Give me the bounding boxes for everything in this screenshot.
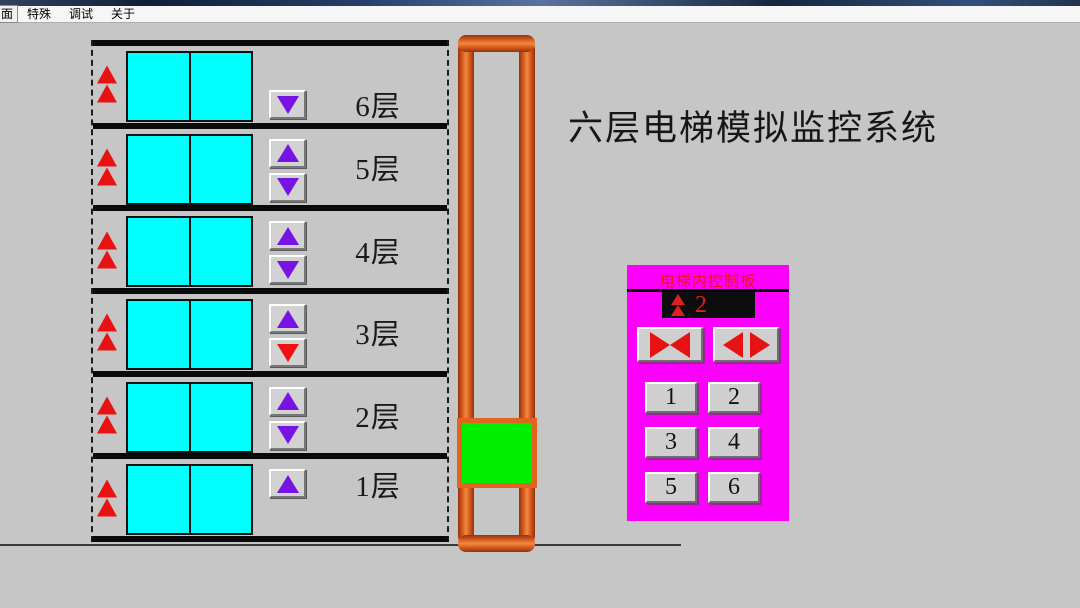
down-arrow-icon — [277, 178, 299, 196]
floor-row-5: 5层 — [93, 123, 447, 206]
elevator-door — [126, 134, 253, 205]
floor-button-6[interactable]: 6 — [708, 472, 760, 503]
up-arrow-icon — [277, 310, 299, 328]
floor-label-3: 3层 — [318, 311, 438, 353]
door-close-icon — [650, 332, 690, 358]
elevator-door — [126, 382, 253, 453]
floor-label-1: 1层 — [318, 463, 438, 505]
floor-label-4: 4层 — [318, 229, 438, 271]
elevator-door — [126, 464, 253, 535]
call-button-up-floor-3[interactable] — [269, 304, 306, 333]
call-button-down-floor-5[interactable] — [269, 173, 306, 202]
call-button-up-floor-4[interactable] — [269, 221, 306, 250]
building-floors: 6层 5层 4层 3层 2层 — [91, 40, 449, 542]
shaft-top-bar — [458, 35, 535, 52]
up-indicator-icon — [97, 65, 117, 104]
floor-button-2[interactable]: 2 — [708, 382, 760, 413]
call-button-down-floor-3[interactable] — [269, 338, 306, 367]
elevator-car — [457, 418, 537, 488]
call-button-down-floor-2[interactable] — [269, 421, 306, 450]
floor-button-grid: 123456 — [645, 382, 760, 503]
page-title: 六层电梯模拟监控系统 — [568, 100, 938, 151]
floor-button-3[interactable]: 3 — [645, 427, 697, 458]
ground-line — [0, 544, 681, 546]
elevator-door — [126, 216, 253, 287]
menu-item-2[interactable]: 特殊 — [18, 6, 60, 22]
down-arrow-icon — [277, 344, 299, 362]
floor-row-2: 2层 — [93, 371, 447, 454]
call-button-up-floor-1[interactable] — [269, 469, 306, 498]
door-divider — [189, 301, 191, 368]
floor-row-1: 1层 — [93, 453, 447, 536]
open-door-button[interactable] — [713, 327, 779, 362]
current-floor-value: 2 — [695, 292, 707, 318]
floor-button-1[interactable]: 1 — [645, 382, 697, 413]
menu-item-4[interactable]: 关于 — [102, 6, 144, 22]
up-indicator-icon — [97, 230, 117, 269]
up-arrow-icon — [277, 392, 299, 410]
up-indicator-icon — [97, 396, 117, 435]
floor-button-5[interactable]: 5 — [645, 472, 697, 503]
up-indicator-icon — [97, 478, 117, 517]
call-button-up-floor-5[interactable] — [269, 139, 306, 168]
down-arrow-icon — [277, 96, 299, 114]
floor-label-6: 6层 — [318, 83, 438, 125]
floor-row-3: 3层 — [93, 288, 447, 371]
up-indicator-icon — [97, 313, 117, 352]
door-button-row — [637, 327, 779, 362]
panel-title: 电梯内控制板 — [627, 270, 789, 291]
up-arrow-icon — [277, 144, 299, 162]
call-button-down-floor-6[interactable] — [269, 90, 306, 119]
door-divider — [189, 466, 191, 533]
floor-row-6: 6层 — [93, 40, 447, 123]
door-divider — [189, 384, 191, 451]
door-open-icon — [723, 332, 770, 358]
door-divider — [189, 53, 191, 120]
elevator-door — [126, 299, 253, 370]
door-divider — [189, 218, 191, 285]
up-indicator-icon — [97, 148, 117, 187]
shaft-bottom-bar — [458, 535, 535, 552]
down-arrow-icon — [277, 426, 299, 444]
call-button-up-floor-2[interactable] — [269, 387, 306, 416]
door-divider — [189, 136, 191, 203]
floor-button-4[interactable]: 4 — [708, 427, 760, 458]
down-arrow-icon — [277, 261, 299, 279]
up-direction-icon — [671, 294, 685, 316]
menu-item-1[interactable]: 面 — [0, 5, 18, 23]
menu-item-3[interactable]: 调试 — [60, 6, 102, 22]
close-door-button[interactable] — [637, 327, 703, 362]
menu-bar: 面特殊调试关于 — [0, 6, 1080, 23]
elevator-door — [126, 51, 253, 122]
up-arrow-icon — [277, 227, 299, 245]
call-button-down-floor-4[interactable] — [269, 255, 306, 284]
floor-display: 2 — [662, 292, 755, 318]
up-arrow-icon — [277, 475, 299, 493]
floor-row-4: 4层 — [93, 205, 447, 288]
floor-label-5: 5层 — [318, 146, 438, 188]
elevator-control-panel: 电梯内控制板 2 123456 — [627, 265, 789, 521]
floor-label-2: 2层 — [318, 394, 438, 436]
